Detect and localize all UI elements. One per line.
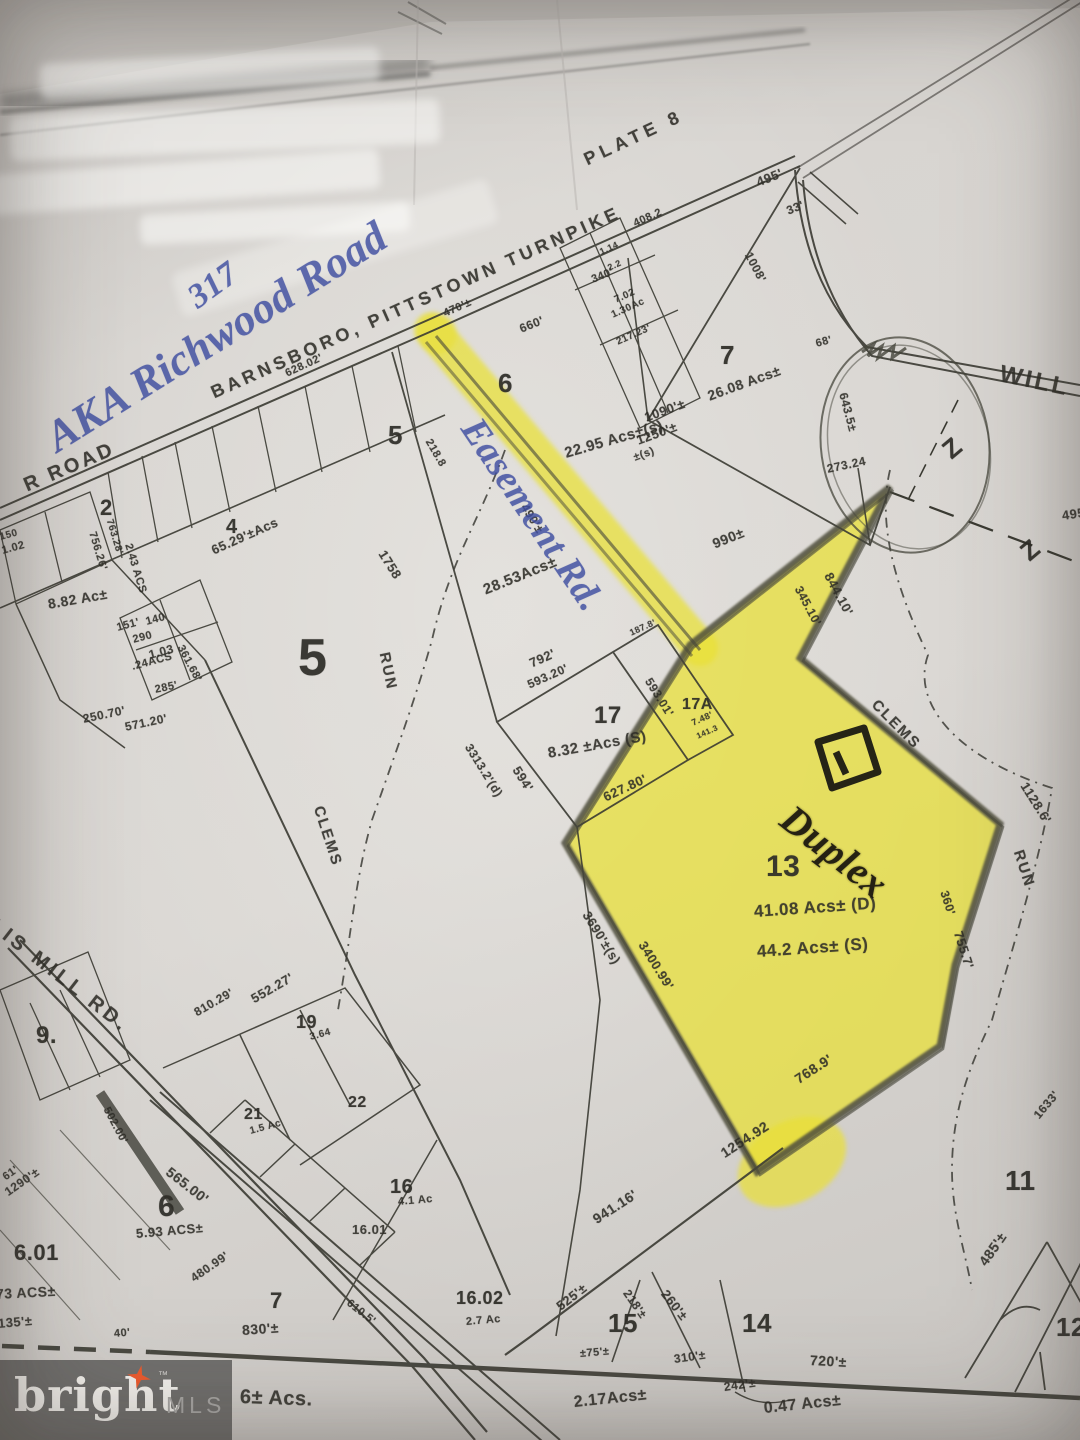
- map-label: 73 ACS±: [0, 1283, 56, 1302]
- map-label: 16.02: [456, 1288, 504, 1309]
- map-label: 830'±: [241, 1319, 279, 1338]
- parcel-17-number: 17: [594, 702, 622, 730]
- plat-map-photo: PLATE 8BARNSBORO, PITTSTOWN TURNPIKER RO…: [0, 0, 1080, 1440]
- logo-mls-text: MLS: [166, 1392, 225, 1419]
- brightmls-logo: bright ™ MLS: [0, 1360, 232, 1440]
- map-label: 16.01: [352, 1222, 387, 1237]
- map-label: 5: [388, 420, 403, 451]
- parcel-6-number: 6: [498, 368, 513, 399]
- parcel-7-number: 7: [720, 340, 735, 371]
- map-label: 135'±: [0, 1313, 33, 1331]
- map-label: 14: [742, 1308, 772, 1339]
- star-icon: [127, 1365, 151, 1389]
- map-label: 11: [1005, 1165, 1036, 1197]
- map-label: 22: [348, 1094, 367, 1112]
- map-label: 9.: [36, 1022, 57, 1050]
- map-label: ±75'±: [579, 1345, 609, 1360]
- map-label: 12: [1056, 1312, 1080, 1343]
- logo-trademark: ™: [158, 1370, 168, 1381]
- logo-brand-text: bright: [14, 1368, 181, 1422]
- sheet-corner-edges: [797, 0, 1080, 178]
- map-label: 40': [113, 1327, 130, 1340]
- map-label: 2: [100, 495, 113, 521]
- map-label: 21: [244, 1106, 263, 1124]
- map-label: 6.01: [14, 1240, 59, 1266]
- map-label: 6: [158, 1190, 175, 1224]
- map-label: 495': [1061, 504, 1080, 523]
- parcel-13-number: 13: [766, 850, 800, 884]
- map-label: 720'±: [810, 1352, 848, 1370]
- acreage-partial: 6± Acs.: [240, 1386, 313, 1412]
- parcel-5-number: 5: [298, 628, 327, 688]
- map-label: 7: [270, 1288, 283, 1314]
